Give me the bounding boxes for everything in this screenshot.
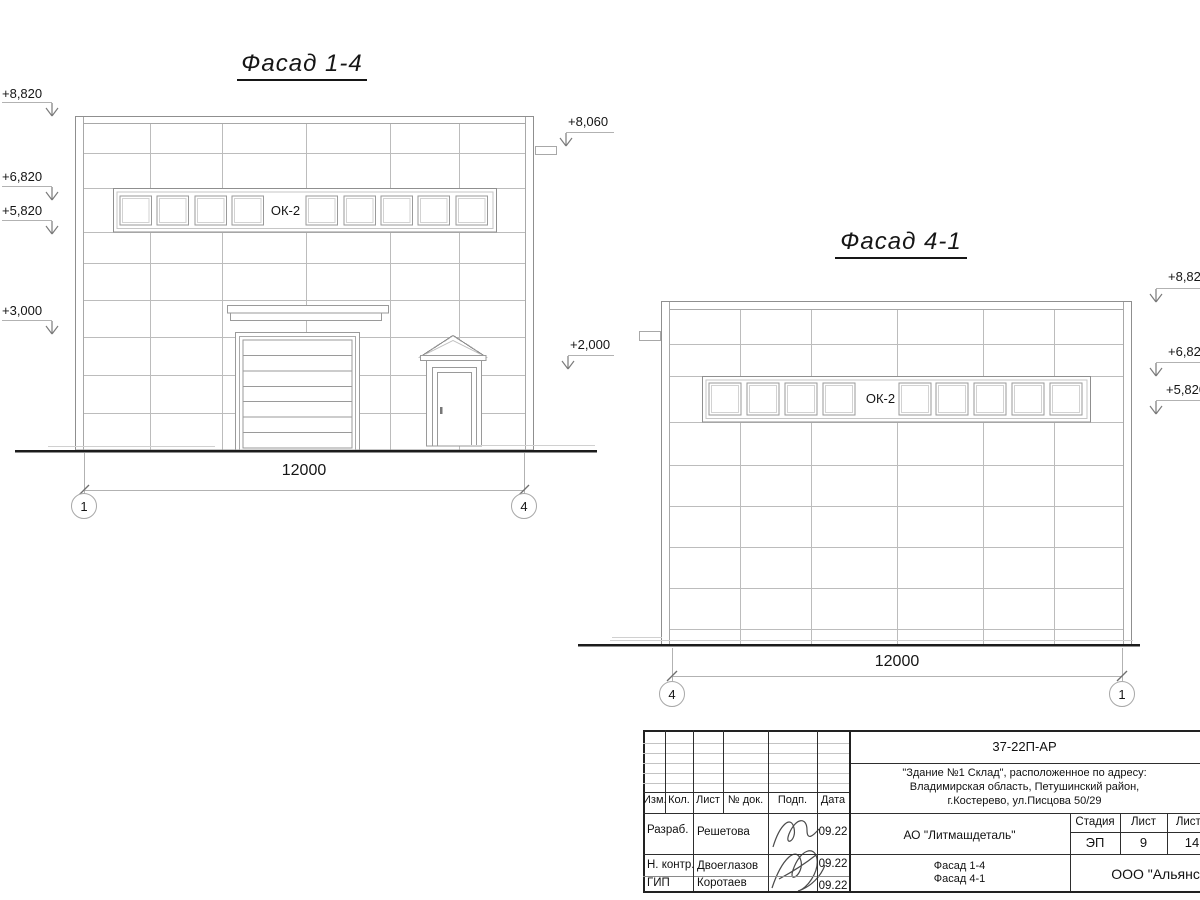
col-header-doc: № док. xyxy=(723,794,768,806)
signer-date: 09.22 xyxy=(817,826,849,838)
dimension-value: 12000 xyxy=(847,653,947,671)
facade-4-1-linework xyxy=(578,289,1200,707)
elevation-label: +8,820 xyxy=(1168,269,1200,284)
signer-role: Н. контр. xyxy=(647,859,694,871)
organization-name: ООО "Альянс" xyxy=(1083,866,1200,882)
facade-4-1-title: Фасад 4-1 xyxy=(835,228,967,259)
elevation-label: +8,060 xyxy=(568,114,608,129)
axis-number: 4 xyxy=(512,499,536,514)
axis-number: 1 xyxy=(1110,687,1134,702)
elevation-label: +2,000 xyxy=(570,337,610,352)
elevation-label: +8,820 xyxy=(2,86,42,101)
entrance-door xyxy=(420,336,486,447)
window-band-label: ОК-2 xyxy=(843,391,918,406)
address-line: "Здание №1 Склад", расположенное по адре… xyxy=(849,767,1200,779)
col-header-data: Дата xyxy=(817,794,849,806)
window-band-label: ОК-2 xyxy=(248,203,323,218)
drawing-title-line: Фасад 4-1 xyxy=(849,873,1070,885)
address-line: г.Костерево, ул.Писцова 50/29 xyxy=(849,795,1200,807)
gutter-outlet xyxy=(536,147,557,155)
signer-date: 09.22 xyxy=(817,880,849,892)
signer-role: Разраб. xyxy=(647,824,688,836)
address-line: Владимирская область, Петушинский район, xyxy=(849,781,1200,793)
sheets-value: 14 xyxy=(1167,835,1200,850)
col-header-kol: Кол. xyxy=(665,794,693,806)
company-name: АО "Литмашдеталь" xyxy=(849,828,1070,842)
ground-line xyxy=(578,644,1140,647)
signer-date: 09.22 xyxy=(817,858,849,870)
axis-number: 1 xyxy=(72,499,96,514)
door-handle xyxy=(440,407,443,414)
drawing-title-line: Фасад 1-4 xyxy=(849,860,1070,872)
sectional-gate xyxy=(228,306,389,451)
ground-line xyxy=(15,450,597,453)
elevation-label: +3,000 xyxy=(2,303,42,318)
signer-name: Решетова xyxy=(697,826,750,838)
elevation-label: +5,820 xyxy=(2,203,42,218)
col-header-list: Лист xyxy=(693,794,723,806)
elevation-label: +5,820 xyxy=(1166,382,1200,397)
signer-name: Двоеглазов xyxy=(697,860,758,872)
sheet-label: Лист xyxy=(1120,816,1167,828)
elevation-label: +6,820 xyxy=(2,169,42,184)
facade-1-4-title: Фасад 1-4 xyxy=(237,50,367,81)
sheets-label: Листов xyxy=(1167,816,1200,828)
door-canopy xyxy=(420,336,486,358)
signer-role: ГИП xyxy=(647,877,670,889)
signer-name: Коротаев xyxy=(697,877,747,889)
stage-label: Стадия xyxy=(1070,816,1120,828)
col-header-podp: Подп. xyxy=(768,794,817,806)
col-header-izm: Изм. xyxy=(643,794,665,806)
dimension-value: 12000 xyxy=(254,462,354,480)
stage-value: ЭП xyxy=(1070,835,1120,850)
facade-1-4-linework xyxy=(2,103,614,519)
sheet-value: 9 xyxy=(1120,835,1167,850)
drawing-sheet: Фасад 1-4 Фасад 4-1 +8,820 +6,820 +5,820… xyxy=(0,0,1200,900)
axis-number: 4 xyxy=(660,687,684,702)
elevation-label: +6,820 xyxy=(1168,344,1200,359)
title-block: Изм. Кол. Лист № док. Подп. Дата Разраб.… xyxy=(643,730,1200,894)
gutter-outlet xyxy=(640,332,661,341)
doc-number: 37-22П-АР xyxy=(849,739,1200,754)
